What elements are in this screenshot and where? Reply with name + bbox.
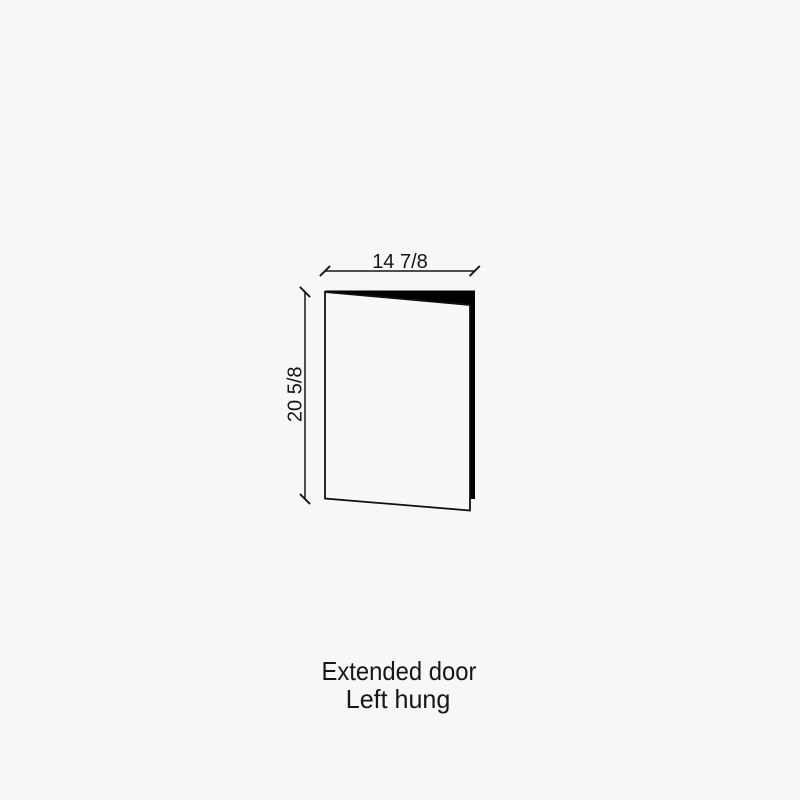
svg-text:Left hung: Left hung [346,684,451,714]
svg-text:20 5/8: 20 5/8 [285,366,307,422]
svg-text:Extended door: Extended door [322,656,477,686]
svg-text:14 7/8: 14 7/8 [372,251,428,273]
